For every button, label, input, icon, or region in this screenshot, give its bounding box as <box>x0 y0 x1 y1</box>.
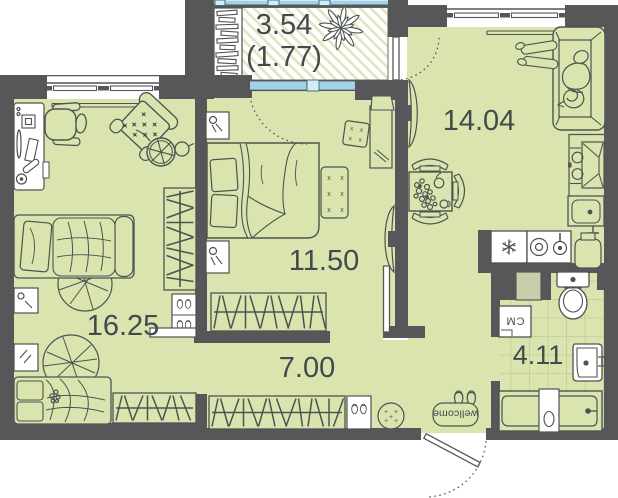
svg-text:(1.77): (1.77) <box>246 41 322 73</box>
svg-text:x: x <box>340 207 344 214</box>
svg-text:СМ: СМ <box>506 315 525 327</box>
svg-text:+: + <box>384 418 388 425</box>
svg-text:16.25: 16.25 <box>87 310 160 342</box>
svg-text:x: x <box>327 191 331 198</box>
svg-text:+: + <box>394 418 398 425</box>
svg-text:+: + <box>389 414 393 421</box>
svg-text:14.04: 14.04 <box>443 105 516 137</box>
svg-text:wellcome: wellcome <box>433 408 479 420</box>
svg-text:+: + <box>394 409 398 416</box>
svg-text:x: x <box>327 207 331 214</box>
svg-text:4.11: 4.11 <box>513 340 564 370</box>
svg-text:x: x <box>340 175 344 182</box>
svg-text:7.00: 7.00 <box>279 352 335 384</box>
svg-text:11.50: 11.50 <box>289 245 359 277</box>
svg-text:+: + <box>384 409 388 416</box>
svg-text:3.54: 3.54 <box>256 9 312 41</box>
svg-text:x: x <box>340 191 344 198</box>
svg-text:x: x <box>327 175 331 182</box>
